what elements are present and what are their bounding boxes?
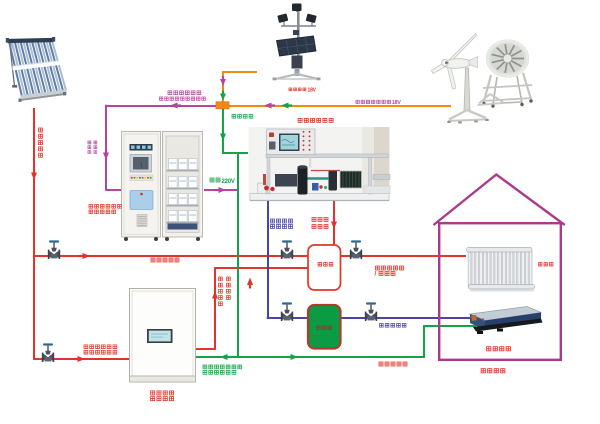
svg-text:220V: 220V: [222, 179, 235, 185]
svg-text:18V: 18V: [392, 100, 401, 106]
svg-text:18V: 18V: [308, 88, 317, 94]
